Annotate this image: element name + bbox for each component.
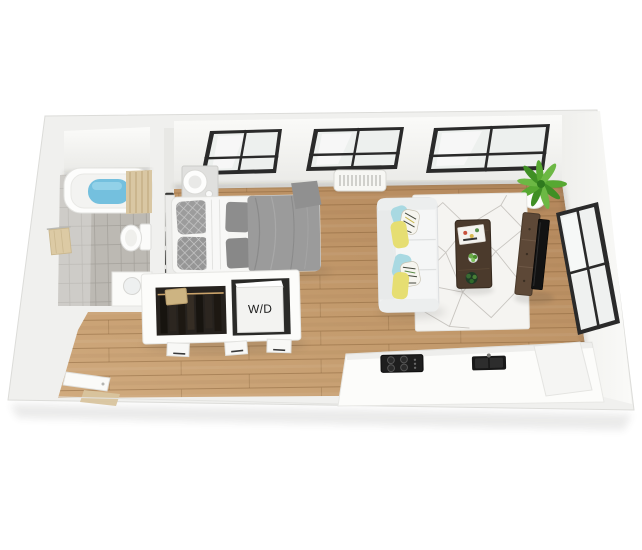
water-highlight: [92, 182, 122, 190]
vanity-sink: [124, 278, 141, 295]
throw-blanket: [291, 181, 321, 210]
washer-dryer-unit: W/D: [235, 280, 284, 332]
storage-box: [165, 288, 187, 305]
sofa-arm-bottom: [379, 298, 439, 312]
coffee-table: [455, 220, 492, 289]
window-north-3: [426, 124, 550, 173]
floorplan-image: W/D: [0, 0, 642, 550]
living-area: [377, 193, 554, 331]
wd-label: W/D: [248, 302, 273, 317]
magazine: [458, 224, 486, 244]
towel: [49, 228, 72, 255]
towel-rack: [47, 227, 74, 255]
apartment-3d-floorplan: W/D: [0, 0, 642, 550]
ac-unit: [334, 170, 386, 193]
table-plant-small: [468, 253, 477, 262]
window-north-2: [306, 127, 404, 171]
north-wall: [174, 115, 562, 193]
lamp-shade: [189, 176, 202, 189]
folded-sheet: [205, 198, 228, 270]
door-knob: [102, 383, 105, 386]
sofa: [377, 197, 439, 312]
toilet-seat: [125, 230, 137, 247]
range-cooktop: [381, 355, 423, 373]
